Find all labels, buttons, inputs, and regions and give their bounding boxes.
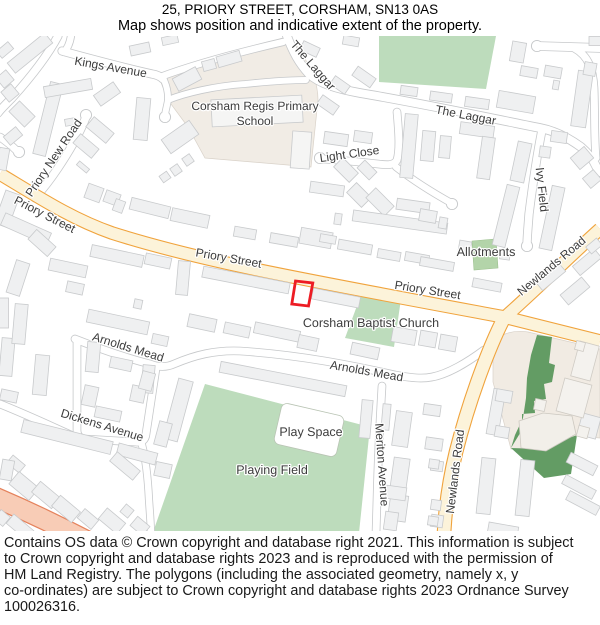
- svg-text:Play Space: Play Space: [279, 425, 342, 439]
- svg-text:Playing Field: Playing Field: [236, 463, 308, 477]
- svg-text:Allotments: Allotments: [457, 245, 516, 259]
- svg-text:Corsham Regis Primary: Corsham Regis Primary: [191, 99, 318, 113]
- svg-text:School: School: [237, 114, 274, 128]
- svg-text:Corsham Baptist Church: Corsham Baptist Church: [303, 316, 439, 330]
